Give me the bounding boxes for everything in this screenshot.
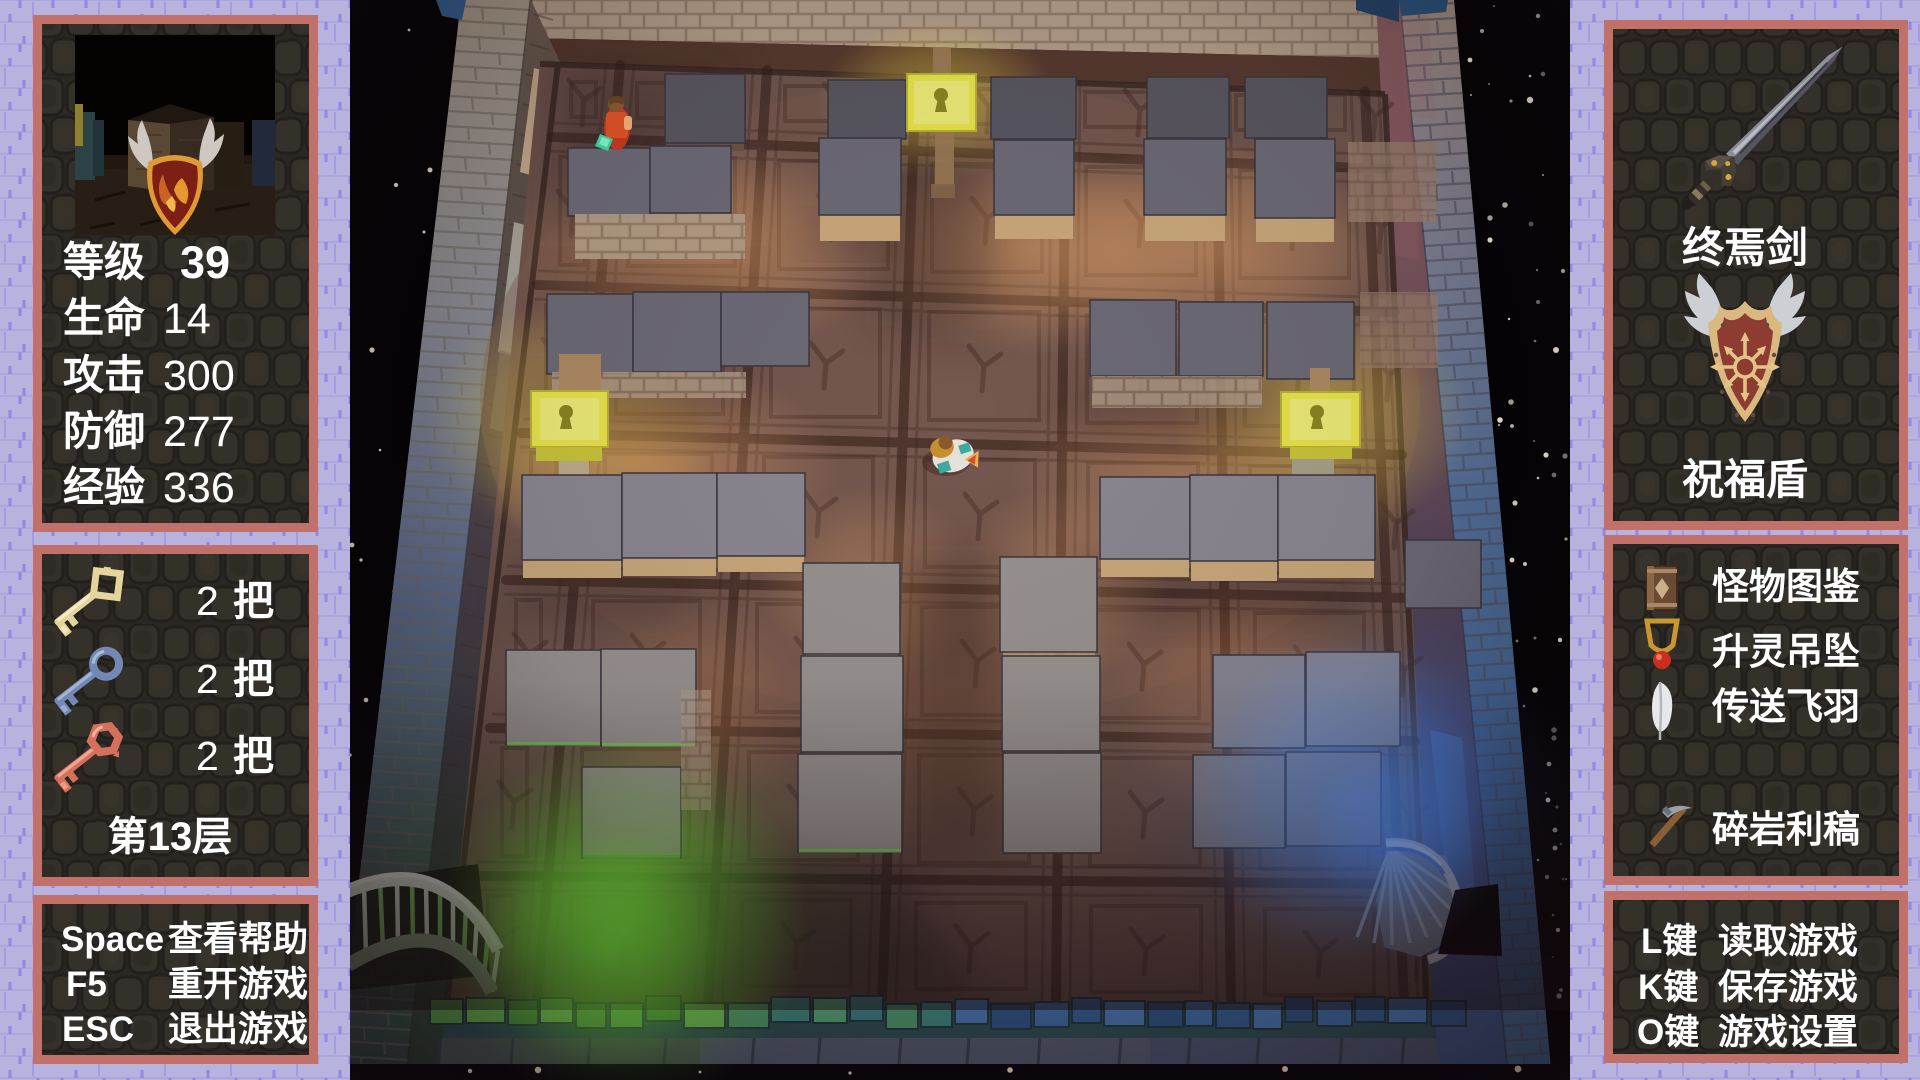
svg-text:L键: L键	[1641, 922, 1697, 961]
svg-text:F5: F5	[66, 965, 107, 1004]
svg-text:39: 39	[180, 237, 230, 288]
svg-text:2: 2	[196, 578, 219, 624]
svg-text:生命: 生命	[63, 295, 145, 341]
svg-text:升灵吊坠: 升灵吊坠	[1712, 631, 1860, 672]
svg-text:防御: 防御	[63, 408, 145, 454]
svg-text:O键: O键	[1637, 1013, 1699, 1052]
svg-text:第13层: 第13层	[108, 815, 233, 859]
svg-text:读取游戏: 读取游戏	[1718, 922, 1858, 961]
svg-text:终焉剑: 终焉剑	[1682, 224, 1808, 271]
svg-text:把: 把	[233, 578, 274, 624]
svg-text:查看帮助: 查看帮助	[168, 920, 308, 959]
svg-text:336: 336	[163, 464, 235, 512]
svg-text:K键: K键	[1638, 968, 1698, 1007]
svg-text:等级: 等级	[63, 239, 145, 285]
svg-text:2: 2	[196, 733, 219, 779]
svg-text:277: 277	[163, 408, 235, 456]
svg-text:Space: Space	[61, 920, 164, 959]
svg-text:ESC: ESC	[62, 1010, 134, 1049]
svg-text:传送飞羽: 传送飞羽	[1711, 686, 1860, 727]
svg-text:把: 把	[233, 733, 274, 779]
svg-text:攻击: 攻击	[63, 352, 145, 398]
svg-text:14: 14	[163, 295, 211, 343]
svg-text:祝福盾: 祝福盾	[1682, 456, 1808, 503]
svg-text:退出游戏: 退出游戏	[168, 1010, 308, 1049]
svg-text:2: 2	[196, 656, 219, 702]
svg-text:把: 把	[233, 656, 274, 702]
svg-text:经验: 经验	[63, 464, 145, 510]
svg-text:保存游戏: 保存游戏	[1718, 968, 1858, 1007]
svg-text:300: 300	[163, 352, 235, 400]
svg-text:游戏设置: 游戏设置	[1718, 1013, 1858, 1052]
svg-text:碎岩利稿: 碎岩利稿	[1712, 809, 1860, 850]
svg-text:怪物图鉴: 怪物图鉴	[1712, 566, 1861, 607]
svg-text:重开游戏: 重开游戏	[168, 965, 308, 1004]
